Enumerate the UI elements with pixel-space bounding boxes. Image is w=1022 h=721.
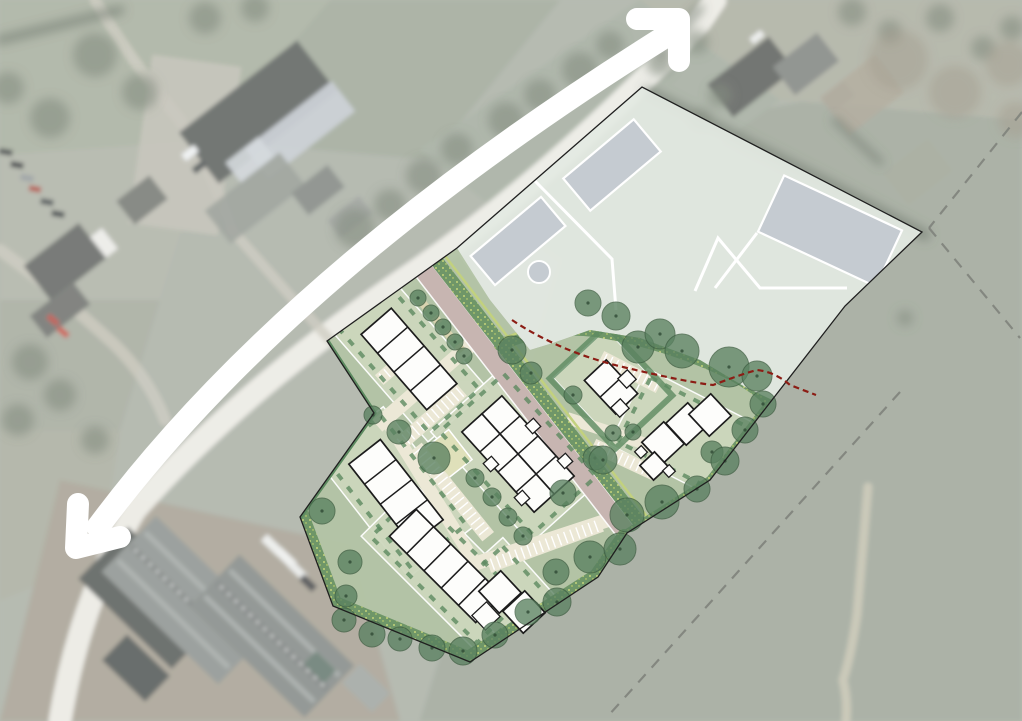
tree-center-dot	[510, 348, 513, 351]
tree-center-dot	[526, 610, 529, 613]
tree-center-dot	[521, 534, 524, 537]
tree-center-dot	[614, 314, 617, 317]
tree-center-dot	[631, 430, 634, 433]
tree-center-dot	[320, 509, 323, 512]
tree-center-dot	[761, 402, 764, 405]
tree-center-dot	[506, 515, 509, 518]
tree-center-dot	[370, 632, 373, 635]
silo-footprint	[528, 261, 550, 283]
tree-center-dot	[432, 456, 435, 459]
tree-center-dot	[727, 365, 730, 368]
tree-center-dot	[571, 393, 574, 396]
tree-center-dot	[755, 374, 758, 377]
tree-center-dot	[601, 458, 604, 461]
tree-center-dot	[461, 649, 464, 652]
tree-center-dot	[529, 371, 532, 374]
tree-center-dot	[611, 431, 614, 434]
tree-center-dot	[493, 633, 496, 636]
site-plan-aerial-map	[0, 0, 1022, 721]
tree-center-dot	[462, 354, 465, 357]
screenshot-root	[0, 0, 1022, 721]
tree-center-dot	[636, 345, 639, 348]
tree-center-dot	[453, 340, 456, 343]
tree-center-dot	[348, 560, 351, 563]
tree-center-dot	[743, 428, 746, 431]
tree-center-dot	[561, 491, 564, 494]
tree-center-dot	[398, 637, 401, 640]
tree-center-dot	[658, 332, 661, 335]
tree-center-dot	[473, 476, 476, 479]
tree-center-dot	[588, 555, 591, 558]
tree-center-dot	[490, 495, 493, 498]
tree-center-dot	[660, 500, 663, 503]
tree-center-dot	[397, 430, 400, 433]
tree-center-dot	[416, 296, 419, 299]
tree-center-dot	[429, 311, 432, 314]
tree-center-dot	[625, 513, 628, 516]
tree-center-dot	[680, 349, 683, 352]
tree-center-dot	[344, 594, 347, 597]
tree-center-dot	[618, 547, 621, 550]
tree-center-dot	[342, 618, 345, 621]
tree-center-dot	[554, 570, 557, 573]
tree-center-dot	[441, 325, 444, 328]
tree-center-dot	[586, 301, 589, 304]
